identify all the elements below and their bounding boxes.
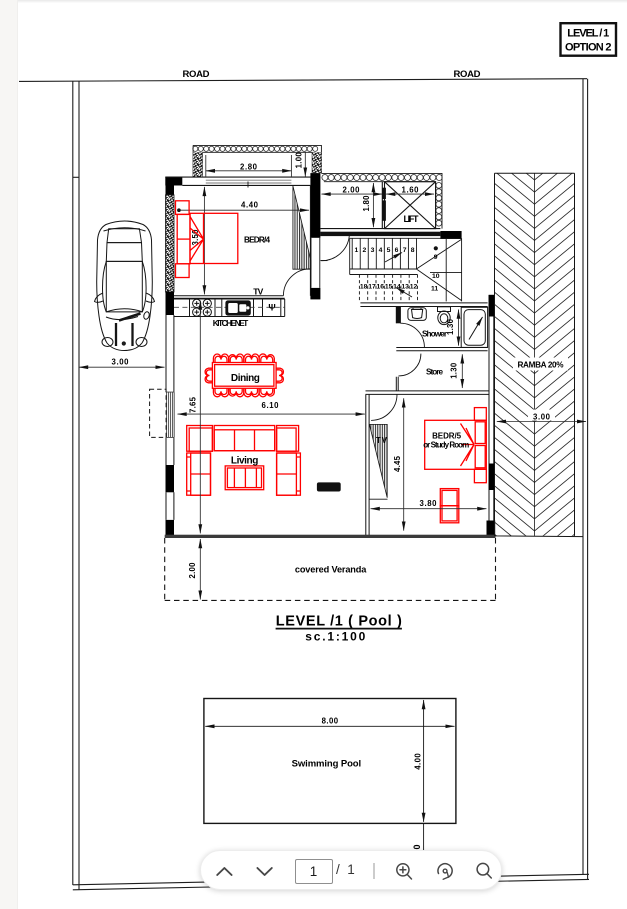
svg-text:12: 12 [410,284,418,291]
svg-text:10: 10 [432,273,440,280]
svg-text:1.30: 1.30 [450,362,459,379]
svg-text:8: 8 [411,247,415,254]
svg-text:3: 3 [371,247,375,254]
svg-text:1: 1 [355,247,359,254]
svg-text:4.40: 4.40 [241,200,259,209]
svg-text:BEDR/5: BEDR/5 [432,432,462,441]
svg-text:LIFT: LIFT [404,214,420,224]
svg-text:1.30: 1.30 [446,318,455,335]
svg-text:Swimming Pool: Swimming Pool [292,759,362,770]
svg-text:1.80: 1.80 [362,195,371,212]
svg-text:6.10: 6.10 [262,401,280,410]
svg-text:17: 17 [368,284,376,291]
svg-text:2: 2 [363,247,367,254]
svg-text:ROAD: ROAD [454,69,481,80]
svg-text:Ψ: Ψ [268,302,275,312]
svg-text:covered Veranda: covered Veranda [295,564,367,574]
svg-text:3.80: 3.80 [420,499,438,508]
svg-text:Living: Living [231,456,259,467]
svg-text:RAMBA 20%: RAMBA 20% [518,361,565,370]
svg-text:or Study Room: or Study Room [423,441,469,450]
svg-text:4.45: 4.45 [393,455,402,472]
svg-text:Store: Store [426,368,443,377]
svg-text:0: 0 [412,844,422,849]
svg-text:1.60: 1.60 [402,185,420,194]
svg-text:3.00: 3.00 [112,357,130,366]
svg-text:8.00: 8.00 [322,717,339,726]
svg-text:Shower: Shower [422,330,448,339]
svg-text:ROAD: ROAD [183,69,210,80]
svg-text:2.80: 2.80 [240,162,258,171]
svg-text:13: 13 [401,284,409,291]
svg-text:15: 15 [385,284,393,291]
svg-text:5: 5 [387,247,391,254]
svg-text:Dining: Dining [231,373,260,384]
svg-text:LEVEL /1 ( Pool ): LEVEL /1 ( Pool ) [276,614,402,630]
svg-text:7: 7 [403,247,407,254]
svg-text:KITCHENET: KITCHENET [213,319,249,328]
svg-text:16: 16 [377,284,385,291]
svg-text:2.00: 2.00 [188,562,197,579]
svg-text:4.00: 4.00 [413,753,422,770]
svg-text:4: 4 [379,247,383,254]
svg-text:sc.1:100: sc.1:100 [305,630,365,644]
svg-text:11: 11 [431,285,438,292]
svg-text:TV: TV [253,286,263,296]
svg-text:LEVEL / 1: LEVEL / 1 [567,28,609,40]
svg-text:BEDR/4: BEDR/4 [244,236,270,245]
svg-text:6: 6 [395,247,399,254]
svg-text:18: 18 [360,284,368,291]
svg-text:3.00: 3.00 [533,412,551,421]
svg-text:OPTION 2: OPTION 2 [565,41,612,53]
svg-text:TV: TV [376,436,388,445]
svg-text:7.65: 7.65 [189,396,198,413]
svg-text:2.00: 2.00 [343,185,361,194]
svg-text:9: 9 [434,254,438,261]
svg-text:1.00: 1.00 [295,152,304,169]
